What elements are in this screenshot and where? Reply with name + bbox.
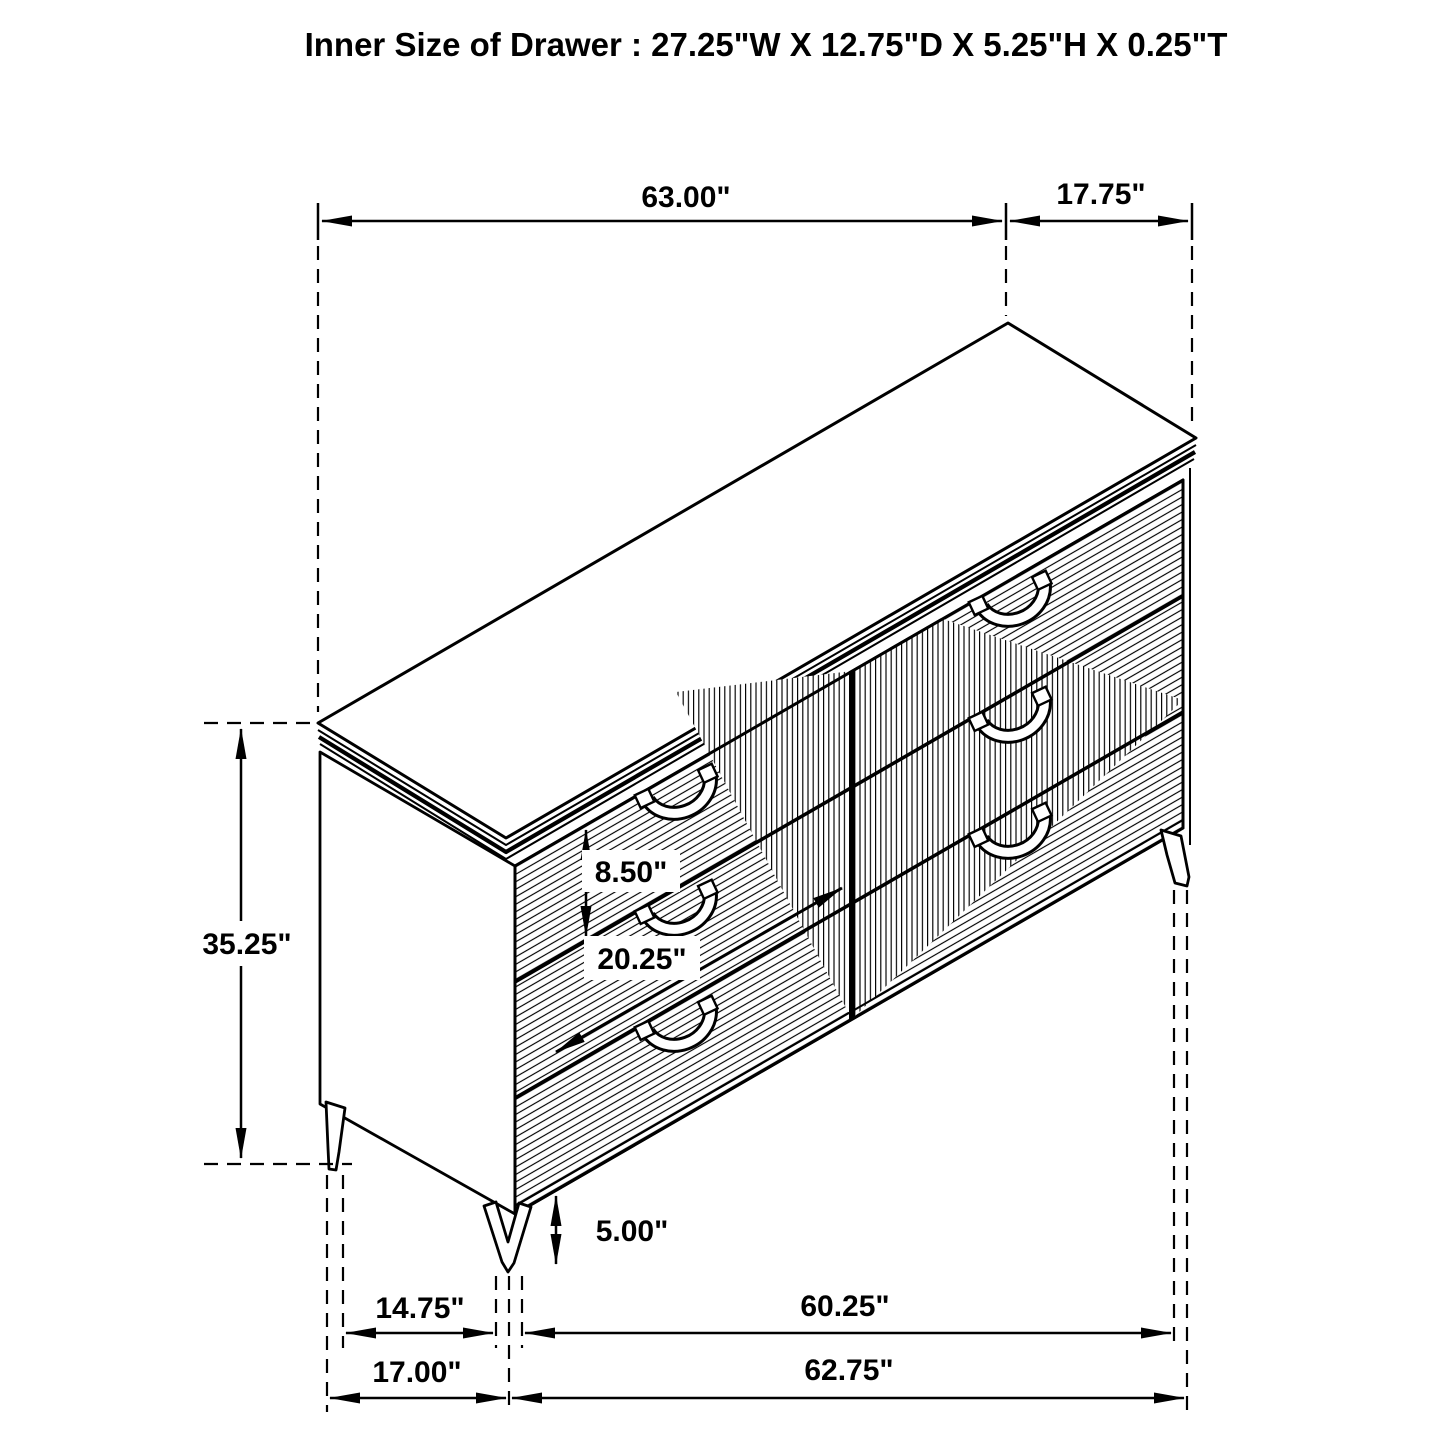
dresser-leg-back-left xyxy=(326,1102,345,1170)
dresser-dimension-diagram: Inner Size of Drawer : 27.25"W X 12.75"D… xyxy=(0,0,1445,1445)
dim-floor-clearance: 5.00" xyxy=(556,1196,688,1264)
dresser-leg-front-right xyxy=(1161,830,1189,886)
dim-label-overall-height: 35.25" xyxy=(202,928,291,961)
dimension-diagram-page: Inner Size of Drawer : 27.25"W X 12.75"D… xyxy=(0,0,1445,1445)
dim-label-leg-span-width-inner: 60.25" xyxy=(800,1290,889,1323)
dim-label-leg-span-depth-outer: 17.00" xyxy=(372,1356,461,1389)
dim-label-top-width: 63.00" xyxy=(641,181,730,214)
dim-label-floor-clearance: 5.00" xyxy=(596,1215,669,1248)
dresser-drawing xyxy=(318,323,1196,1272)
dim-label-top-depth: 17.75" xyxy=(1056,178,1145,211)
diagram-title: Inner Size of Drawer : 27.25"W X 12.75"D… xyxy=(305,26,1228,63)
dim-label-drawer-opening-width: 20.25" xyxy=(597,943,686,976)
dresser-leg-front-left xyxy=(484,1202,531,1272)
dim-label-leg-span-depth-inner: 14.75" xyxy=(375,1292,464,1325)
dim-label-top-drawer-height: 8.50" xyxy=(595,856,668,889)
dim-label-leg-span-width-outer: 62.75" xyxy=(804,1354,893,1387)
